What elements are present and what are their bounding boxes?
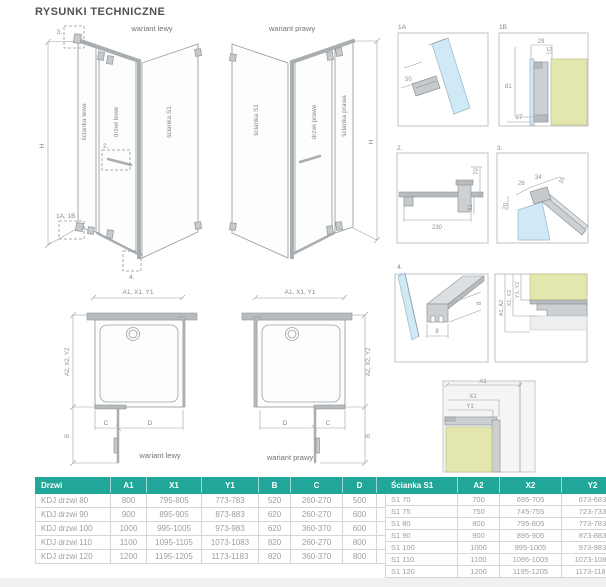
table-cell: 973-983	[202, 522, 259, 536]
detail-2-dim-70: 70	[474, 168, 480, 175]
left-s1-label: ścianka S1	[166, 106, 173, 138]
detail-5: A1, A2 X1, X2 Y1, Y2	[493, 260, 589, 366]
table-cell: 1200	[458, 566, 500, 578]
page-title: RYSUNKI TECHNICZNE	[35, 6, 165, 18]
detail-2: 2. 70 31 230	[394, 142, 490, 248]
table-cell: 620	[259, 508, 291, 522]
right-plan-b-dim: B	[366, 434, 372, 438]
table-cell: 873-883	[562, 530, 606, 542]
table-cell: 995-1005	[500, 542, 562, 554]
detail-1b-dim-12: 12	[546, 47, 552, 53]
left-plan-top-dim: A1, X1, Y1	[123, 289, 154, 296]
table-cell: 873-883	[202, 508, 259, 522]
table-cell: 800	[111, 494, 147, 508]
column-header: X1	[147, 478, 202, 494]
table-cell: 700	[458, 494, 500, 506]
table-row: S1 70700695-705673-683	[386, 494, 606, 506]
right-3d-height-label: H	[368, 139, 375, 144]
table-cell: 800	[343, 536, 377, 550]
callout-4-label: 4.	[129, 274, 135, 281]
table-cell: 360-370	[291, 550, 343, 564]
doors-table: DrzwiA1X1Y1BCDHKDJ drzwi 80800795-805773…	[35, 477, 414, 564]
table-cell: 620	[259, 522, 291, 536]
left-3d-variant-label: wariant lewy	[130, 24, 173, 33]
table-cell: 750	[458, 506, 500, 518]
table-cell: 260-270	[291, 508, 343, 522]
detail-1b-dim-27: 27	[516, 115, 523, 121]
table-cell: S1 80	[386, 518, 458, 530]
table-cell: 1000	[458, 542, 500, 554]
right-plan-c-dim: C	[326, 420, 331, 427]
table-row: S1 12012001195-12051173-1183	[386, 566, 606, 578]
column-header: Drzwi	[36, 478, 111, 494]
table-cell: 773-783	[562, 518, 606, 530]
table-cell: 1200	[111, 550, 147, 564]
table-row: S1 11011001095-10051073-1083	[386, 554, 606, 566]
corner-dim-y1: Y1	[466, 404, 474, 410]
right-plan-side-dim: A2, X2, Y2	[366, 347, 372, 376]
table-cell: 1173-1183	[202, 550, 259, 564]
right-plan-variant-label: wariant prawy	[266, 453, 314, 462]
table-row: KDJ drzwi 12012001195-12051173-118382036…	[36, 550, 414, 564]
table-cell: 1100	[111, 536, 147, 550]
right-plan-d-dim: D	[283, 420, 288, 427]
detail-2-label: 2.	[397, 145, 403, 152]
table-cell: 1195-1205	[500, 566, 562, 578]
left-3d-view: wariant lewy H	[28, 18, 228, 282]
left-3d-height-label: H	[39, 143, 46, 148]
table-cell: 745-755	[500, 506, 562, 518]
detail-1b-dim-29: 29	[538, 39, 545, 45]
detail-5-dim-a: A1, A2	[499, 300, 505, 316]
detail-1a-label: 1A	[398, 24, 407, 31]
technical-drawing-page: RYSUNKI TECHNICZNE wariant lewy H	[0, 0, 606, 587]
left-wall-label: ścianka lewa	[81, 103, 88, 141]
detail-4: 4. 8 8	[393, 260, 490, 366]
table-cell: 723-733	[562, 506, 606, 518]
detail-3-label: 3.	[497, 145, 503, 152]
column-header: B	[259, 478, 291, 494]
table-row: S1 80800795-805773-783	[386, 518, 606, 530]
left-plan-side-dim: A2, X2, Y2	[65, 347, 71, 376]
table-cell: 520	[259, 494, 291, 508]
table-cell: KDJ drzwi 90	[36, 508, 111, 522]
detail-2-dim-230: 230	[432, 225, 443, 231]
table-cell: 1095-1105	[147, 536, 202, 550]
left-plan-variant-label: wariant lewy	[138, 451, 181, 460]
table-cell: 1073-1083	[202, 536, 259, 550]
table-cell: 795-805	[147, 494, 202, 508]
table-cell: S1 100	[386, 542, 458, 554]
detail-5-dim-y: Y1, Y2	[515, 282, 521, 298]
right-3d-variant-label: wariant prawy	[268, 24, 316, 33]
table-cell: KDJ drzwi 120	[36, 550, 111, 564]
table-cell: 1195-1205	[147, 550, 202, 564]
left-plan-d-dim: D	[148, 420, 153, 427]
detail-1b: 1B 29 12 81 27	[496, 22, 592, 130]
table-cell: KDJ drzwi 110	[36, 536, 111, 550]
right-plan-structure	[242, 313, 352, 462]
left-3d-structure	[73, 34, 201, 258]
bottom-strip	[0, 578, 606, 587]
table-row: S1 90900895-905873-883	[386, 530, 606, 542]
corner-install-diagram: A1 X1 Y1	[438, 374, 590, 476]
table-cell: 900	[111, 508, 147, 522]
table-cell: S1 110	[386, 554, 458, 566]
left-plan-view: A1, X1, Y1 A2, X2, Y2 B C D	[28, 282, 228, 474]
column-header: X2	[500, 478, 562, 494]
table-cell: KDJ drzwi 80	[36, 494, 111, 508]
detail-1a: 1A 50	[396, 22, 492, 130]
table-cell: 800	[343, 550, 377, 564]
table-cell: 895-905	[147, 508, 202, 522]
callout-3-label: 3.	[57, 29, 63, 36]
table-cell: KDJ drzwi 100	[36, 522, 111, 536]
table-cell: 600	[343, 508, 377, 522]
column-header: Ścianka S1	[386, 478, 458, 494]
table-cell: 673-683	[562, 494, 606, 506]
table-cell: 820	[259, 550, 291, 564]
right-3d-height-dim: H	[353, 38, 380, 243]
column-header: D	[343, 478, 377, 494]
left-door-label: drzwi lewe	[113, 106, 120, 137]
table-cell: S1 70	[386, 494, 458, 506]
left-plan-b-dim: B	[65, 434, 71, 438]
column-header: Y2	[562, 478, 606, 494]
left-plan-structure	[87, 313, 197, 462]
detail-1b-label: 1B	[499, 24, 507, 31]
table-cell: 995-1005	[147, 522, 202, 536]
table-row: KDJ drzwi 11011001095-11051073-108382026…	[36, 536, 414, 550]
table-cell: 260-270	[291, 536, 343, 550]
corner-dim-x1: X1	[469, 394, 477, 400]
table-cell: 1073-1083	[562, 554, 606, 566]
table-row: KDJ drzwi 80800795-805773-783520260-2705…	[36, 494, 414, 508]
column-header: A1	[111, 478, 147, 494]
column-header: Y1	[202, 478, 259, 494]
left-plan-c-dim: C	[104, 420, 109, 427]
table-cell: 800	[458, 518, 500, 530]
table-row: KDJ drzwi 90900895-905873-883620260-2706…	[36, 508, 414, 522]
detail-4-label: 4.	[397, 264, 403, 271]
detail-3: 3. 26 34 16 20	[494, 142, 592, 248]
right-wall-label: ścianka prawa	[341, 95, 348, 137]
table-cell: 260-270	[291, 494, 343, 508]
table-cell: 820	[259, 536, 291, 550]
table-cell: 1000	[111, 522, 147, 536]
walls-table: Ścianka S1A2X2Y2S1 70700695-705673-683S1…	[385, 477, 606, 578]
table-cell: S1 90	[386, 530, 458, 542]
detail-3-dim-26: 26	[518, 181, 525, 187]
table-cell: 600	[343, 522, 377, 536]
table-cell: 695-705	[500, 494, 562, 506]
table-row: S1 75750745-755723-733	[386, 506, 606, 518]
right-plan-view: A1, X1, Y1 A2, X2, Y2 B D C	[228, 282, 408, 474]
table-cell: 500	[343, 494, 377, 508]
detail-5-dim-x: X1, X2	[507, 290, 513, 307]
right-3d-structure	[229, 41, 353, 258]
table-row: KDJ drzwi 1001000995-1005973-983620360-3…	[36, 522, 414, 536]
table-cell: 1173-1183	[562, 566, 606, 578]
right-plan-top-dim: A1, X1, Y1	[285, 289, 316, 296]
table-cell: 973-983	[562, 542, 606, 554]
callout-1ab-label: 1A, 1B	[56, 213, 76, 220]
right-s1-label: ścianka S1	[253, 104, 260, 136]
table-cell: 900	[458, 530, 500, 542]
column-header: C	[291, 478, 343, 494]
table-cell: 1100	[458, 554, 500, 566]
table-cell: 773-783	[202, 494, 259, 508]
table-cell: 795-805	[500, 518, 562, 530]
right-door-label: drzwi prawe	[311, 104, 318, 139]
callout-2-label: 2.	[103, 143, 109, 150]
table-cell: S1 120	[386, 566, 458, 578]
detail-3-dim-34: 34	[535, 175, 542, 181]
table-cell: 1095-1005	[500, 554, 562, 566]
corner-dim-a1: A1	[479, 379, 487, 385]
table-cell: 360-370	[291, 522, 343, 536]
table-cell: 895-905	[500, 530, 562, 542]
right-3d-view: wariant prawy H ścianka S1 drzwi praw	[222, 18, 402, 282]
column-header: A2	[458, 478, 500, 494]
detail-1b-dim-81: 81	[505, 84, 512, 90]
detail-1a-dim-50: 50	[405, 77, 412, 83]
corner-diagram-structure	[445, 417, 500, 472]
table-row: S1 1001000995-1005973-983	[386, 542, 606, 554]
table-cell: S1 75	[386, 506, 458, 518]
